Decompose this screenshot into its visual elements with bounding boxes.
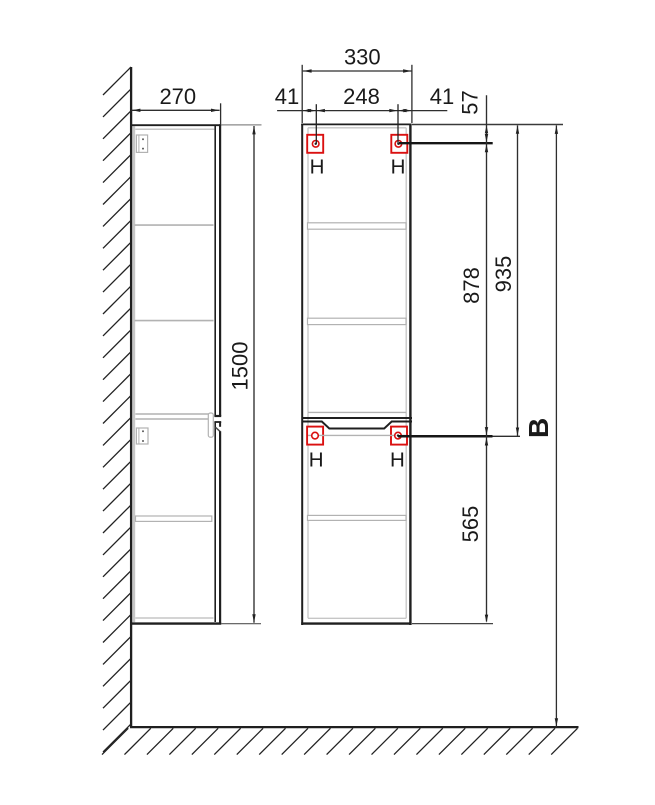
svg-text:41: 41 [430, 84, 454, 109]
svg-text:565: 565 [458, 506, 483, 543]
svg-text:935: 935 [491, 256, 516, 293]
svg-text:1500: 1500 [228, 342, 253, 391]
svg-text:H: H [391, 156, 406, 179]
svg-text:878: 878 [459, 267, 484, 304]
svg-text:B: B [523, 418, 554, 438]
svg-text:248: 248 [343, 84, 380, 109]
svg-text:H: H [309, 448, 324, 471]
svg-text:H: H [310, 156, 325, 179]
svg-text:270: 270 [159, 84, 196, 109]
svg-text:330: 330 [344, 44, 381, 69]
svg-text:H: H [390, 448, 405, 471]
svg-text:41: 41 [275, 84, 299, 109]
svg-text:57: 57 [458, 90, 483, 114]
